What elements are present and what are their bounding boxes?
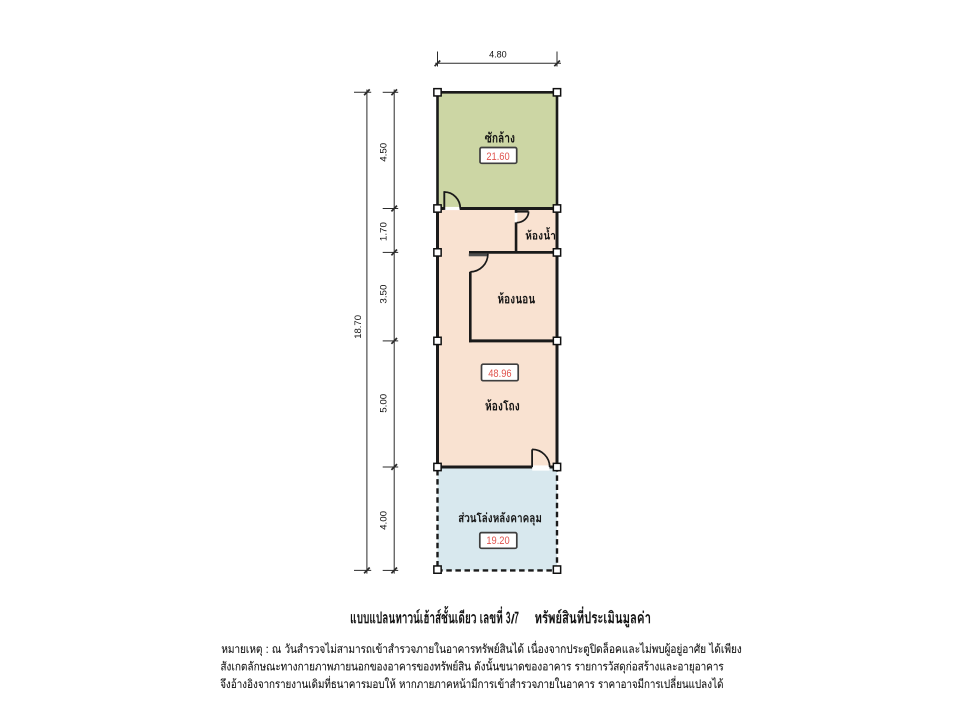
svg-text:4.50: 4.50 (378, 143, 388, 162)
svg-text:4.00: 4.00 (378, 511, 388, 530)
svg-text:3.50: 3.50 (378, 285, 388, 304)
svg-text:21.60: 21.60 (486, 151, 509, 163)
svg-text:19.20: 19.20 (486, 535, 509, 547)
svg-text:5.00: 5.00 (378, 394, 388, 413)
svg-text:18.70: 18.70 (353, 315, 363, 339)
svg-text:1.70: 1.70 (378, 222, 388, 241)
svg-text:4.80: 4.80 (489, 50, 507, 60)
svg-text:48.96: 48.96 (488, 368, 511, 380)
